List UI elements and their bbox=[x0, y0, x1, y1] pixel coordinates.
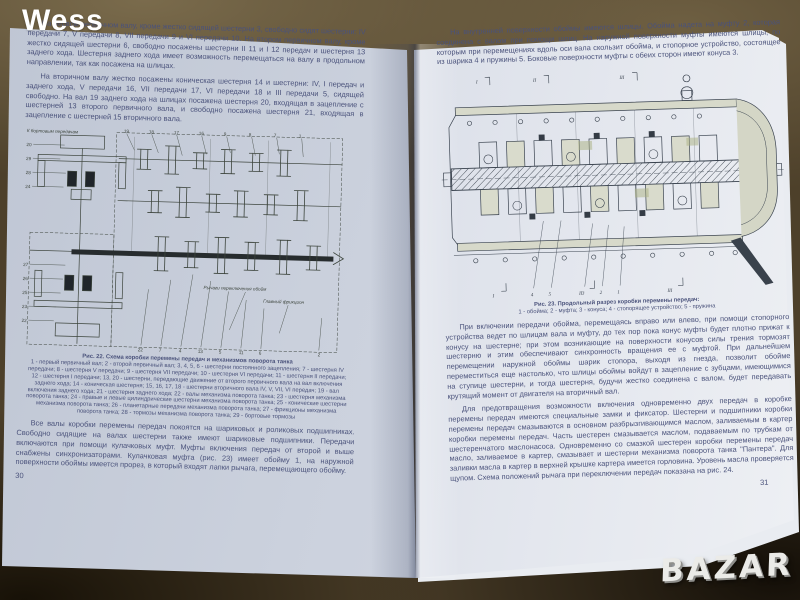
bazar-logo: BAZAR bbox=[659, 546, 793, 589]
callout-number: 6 bbox=[259, 351, 262, 356]
figure-22: К бортовым передачам Рычаги переключения… bbox=[19, 124, 363, 359]
callout-number: 24 bbox=[25, 184, 31, 189]
figure-23-cross-section: I II III I II III 4 5 3 2 1 bbox=[437, 60, 788, 303]
callout-number: 26 bbox=[23, 276, 29, 281]
figure-22-caption-body: 1 - первый первичный вал; 2 - второй пер… bbox=[23, 359, 350, 423]
left-paragraph-2: На вторичном валу жестко посажены кониче… bbox=[25, 71, 364, 129]
seller-watermark: Wess bbox=[22, 4, 104, 38]
section-mark: I bbox=[475, 81, 478, 86]
diagram-label-main-friction: Главный фрикцион bbox=[263, 298, 305, 305]
callout-number: 1 bbox=[617, 291, 620, 296]
right-paragraph-3: Для предотвращения возможности включения… bbox=[448, 394, 794, 483]
callout-number: 7 bbox=[274, 133, 277, 138]
callout-number: 4 bbox=[531, 293, 534, 298]
callout-number: 4 bbox=[179, 348, 182, 353]
callout-number: 11 bbox=[239, 350, 244, 355]
callout-number: 13 bbox=[198, 349, 204, 354]
callout-number: 8 bbox=[249, 132, 252, 137]
callout-number: 2 bbox=[600, 291, 603, 296]
callout-number: 16 bbox=[199, 131, 205, 136]
callout-number: 5 bbox=[549, 293, 552, 298]
callout-number: 2 bbox=[318, 352, 321, 357]
callout-number: 22 bbox=[21, 318, 27, 323]
callout-number: 5 bbox=[219, 349, 222, 354]
callout-number: 27 bbox=[23, 262, 29, 267]
section-mark: II bbox=[532, 79, 537, 84]
right-page-content: На внутренней поверхности обоймы имеются… bbox=[436, 17, 795, 496]
callout-number: 20 bbox=[26, 142, 32, 147]
callout-number: 1 bbox=[299, 134, 302, 139]
callout-number: 18 bbox=[149, 129, 155, 134]
diagram-label-side-drives: К бортовым передачам bbox=[27, 128, 79, 134]
figure-22-caption: Рис. 22. Схема коробки перемены передач … bbox=[23, 352, 351, 423]
diagram-label-forks: Рычаги переключения обойм bbox=[203, 284, 267, 292]
right-paragraph-2: При включении передачи обойма, перемещая… bbox=[445, 312, 791, 401]
callout-number: 29 bbox=[26, 156, 32, 161]
callout-number: 22 bbox=[138, 347, 144, 352]
callout-number: 19 bbox=[124, 129, 130, 134]
callout-number: 9 bbox=[224, 131, 227, 136]
callout-number: 17 bbox=[174, 130, 180, 135]
figure-23: I II III I II III 4 5 3 2 1 bbox=[437, 60, 788, 303]
left-page-content: На первом первичном валу, кроме жестко с… bbox=[15, 18, 366, 489]
callout-number: 7 bbox=[159, 348, 162, 353]
section-mark: I bbox=[492, 295, 495, 300]
section-mark: III bbox=[618, 76, 624, 81]
callout-number: 25 bbox=[22, 290, 28, 295]
left-paragraph-3: Все валы коробки перемены передач покоят… bbox=[15, 418, 354, 476]
figure-22-schematic: К бортовым передачам Рычаги переключения… bbox=[19, 124, 355, 359]
callout-number: 3 bbox=[582, 292, 585, 297]
callout-number: 23 bbox=[22, 304, 28, 309]
section-mark: III bbox=[666, 289, 672, 294]
callout-number: 28 bbox=[26, 170, 32, 175]
